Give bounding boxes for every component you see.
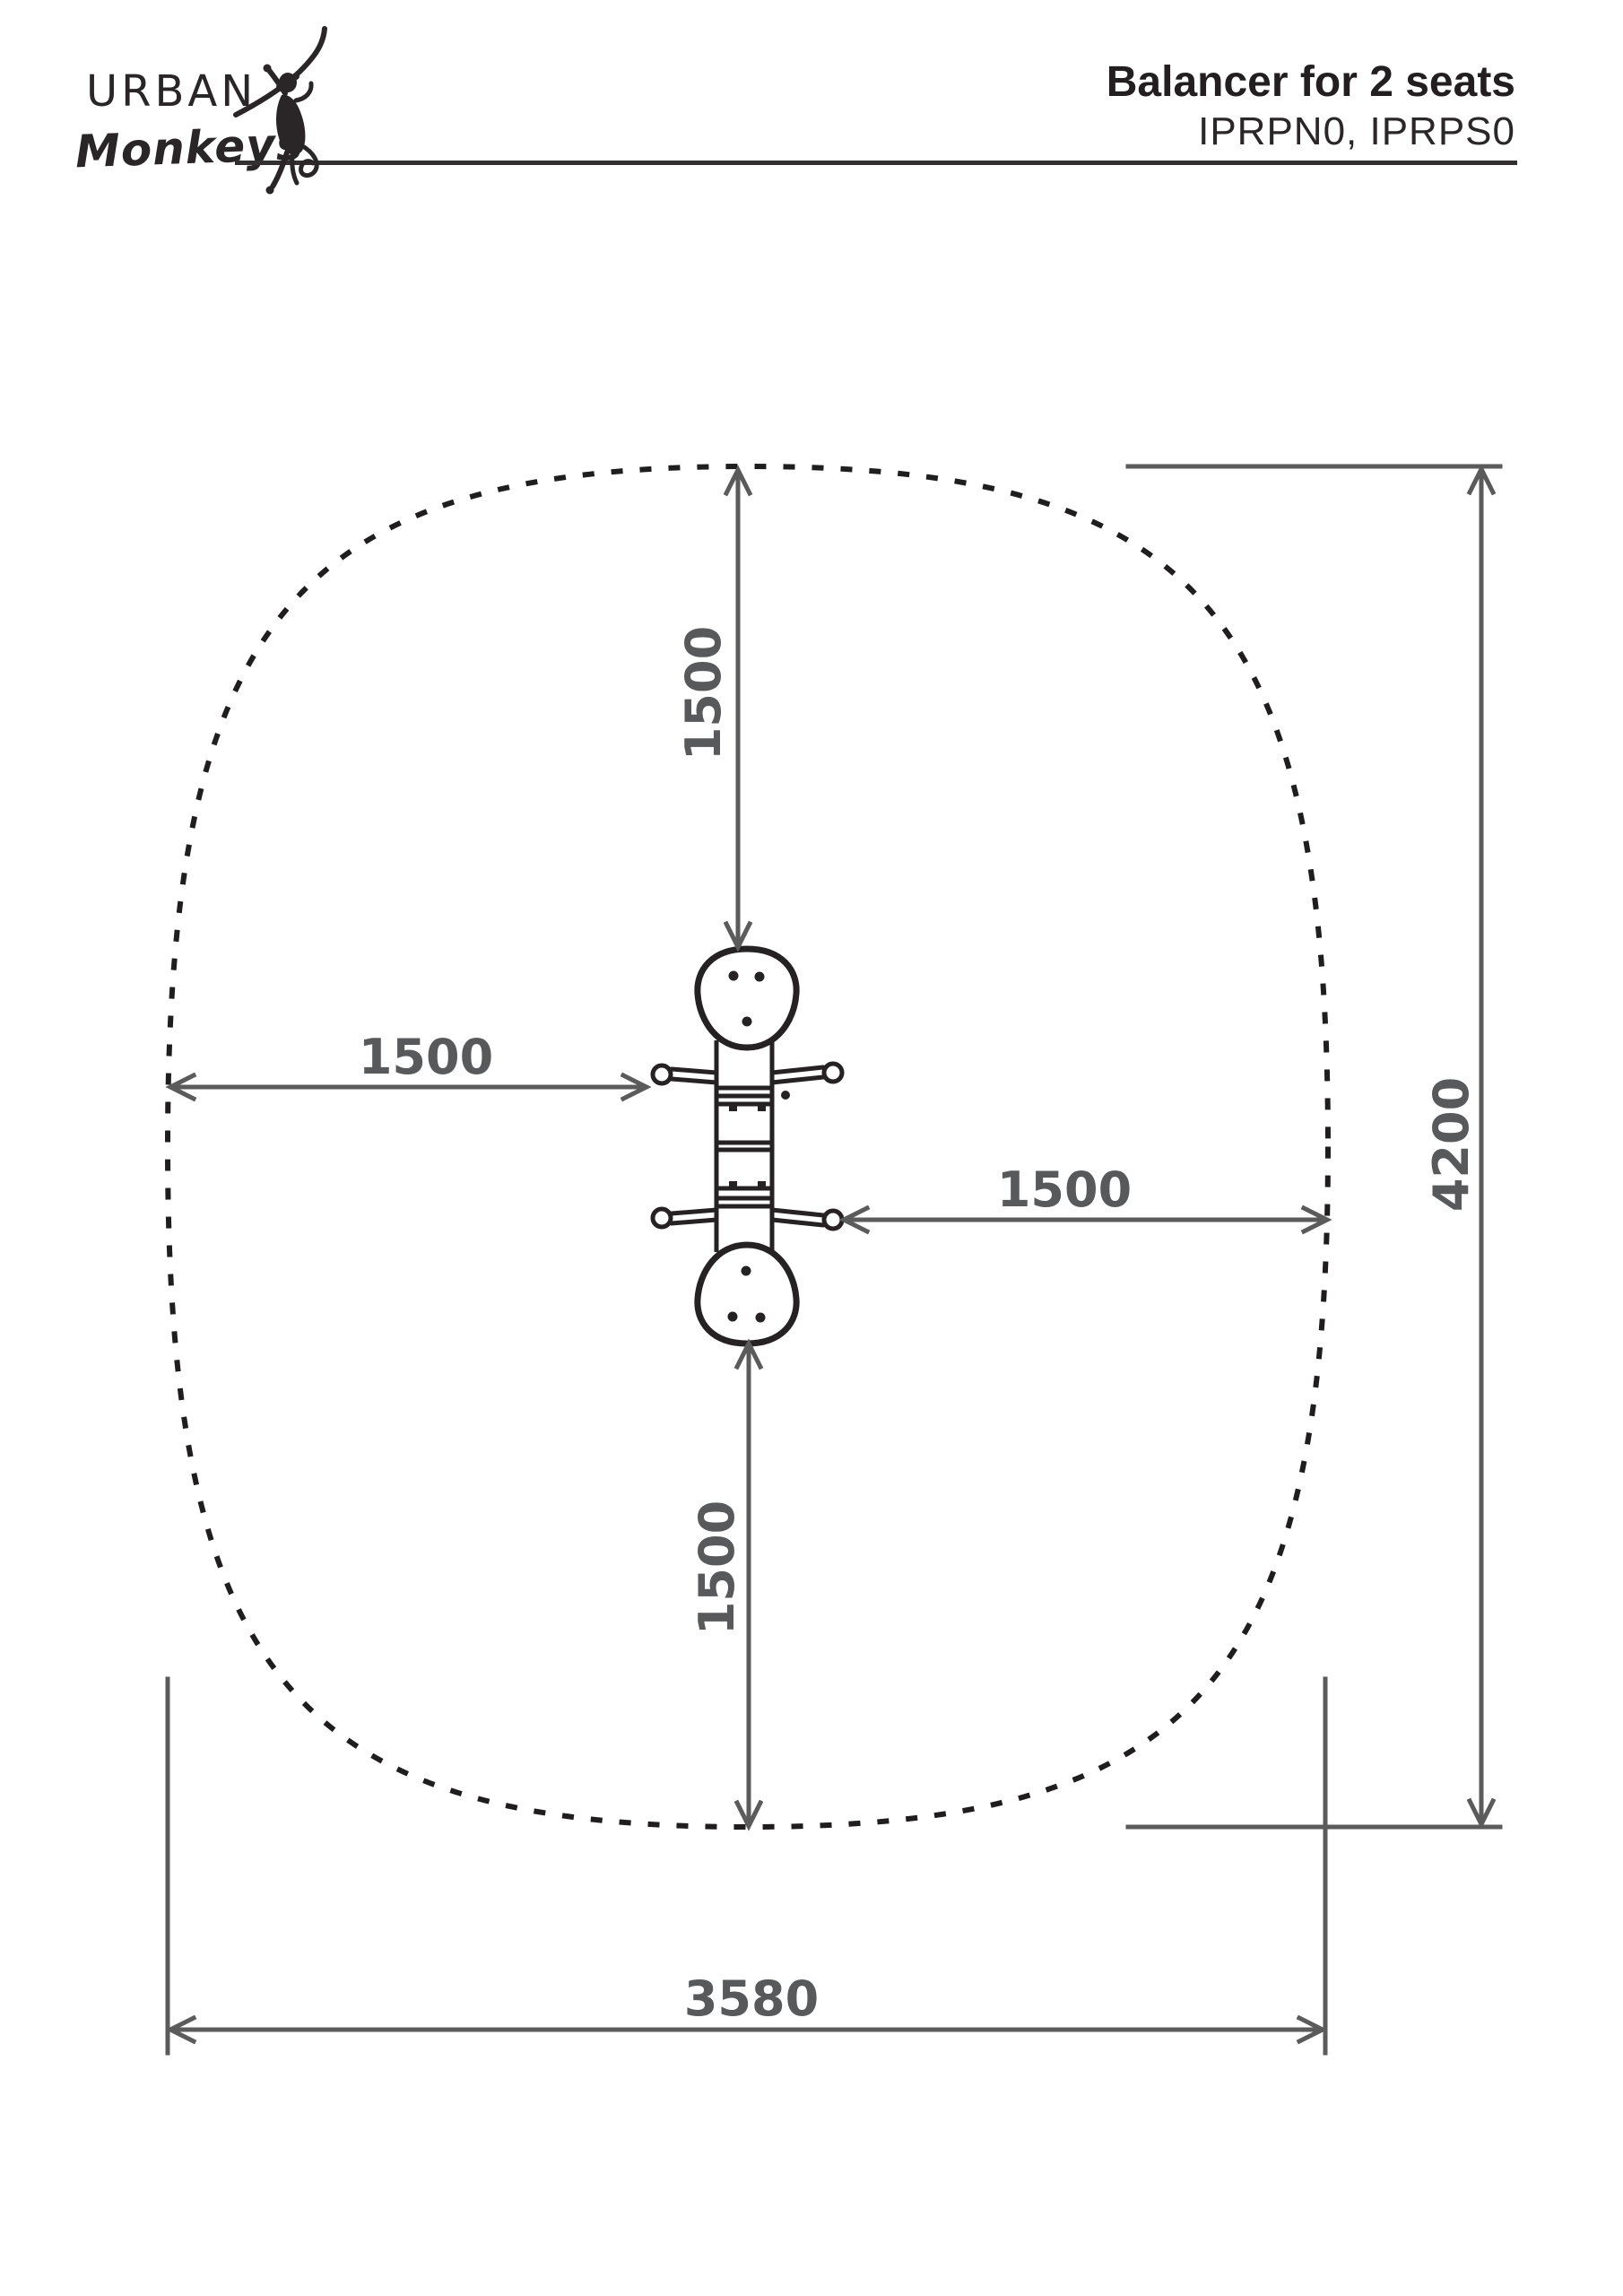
- balancer-top-view: [653, 949, 842, 1344]
- dim-label-left-clearance: 1500: [359, 1029, 493, 1085]
- monkey-body-parts: [264, 65, 306, 195]
- monkey-icon: [236, 29, 325, 195]
- footrest-tabs: [729, 1104, 766, 1188]
- dim-label-zone-length: 4200: [1423, 1077, 1480, 1212]
- dim-label-bottom-clearance: 1500: [689, 1500, 745, 1635]
- grip-bottom-left: [653, 1209, 671, 1227]
- diagram-canvas: 1500 1500 1500 1500 4200 3580: [0, 0, 1623, 2296]
- grip-top-left: [653, 1065, 671, 1083]
- seat-bottom: [698, 1245, 796, 1344]
- dim-label-top-clearance: 1500: [675, 626, 732, 761]
- dim-label-right-clearance: 1500: [997, 1161, 1132, 1218]
- bolt-dot: [781, 1091, 790, 1100]
- dim-label-zone-width: 3580: [684, 1970, 819, 2027]
- seat-top: [698, 949, 796, 1048]
- grip-top-right: [824, 1064, 842, 1082]
- handlebars: [672, 1067, 823, 1225]
